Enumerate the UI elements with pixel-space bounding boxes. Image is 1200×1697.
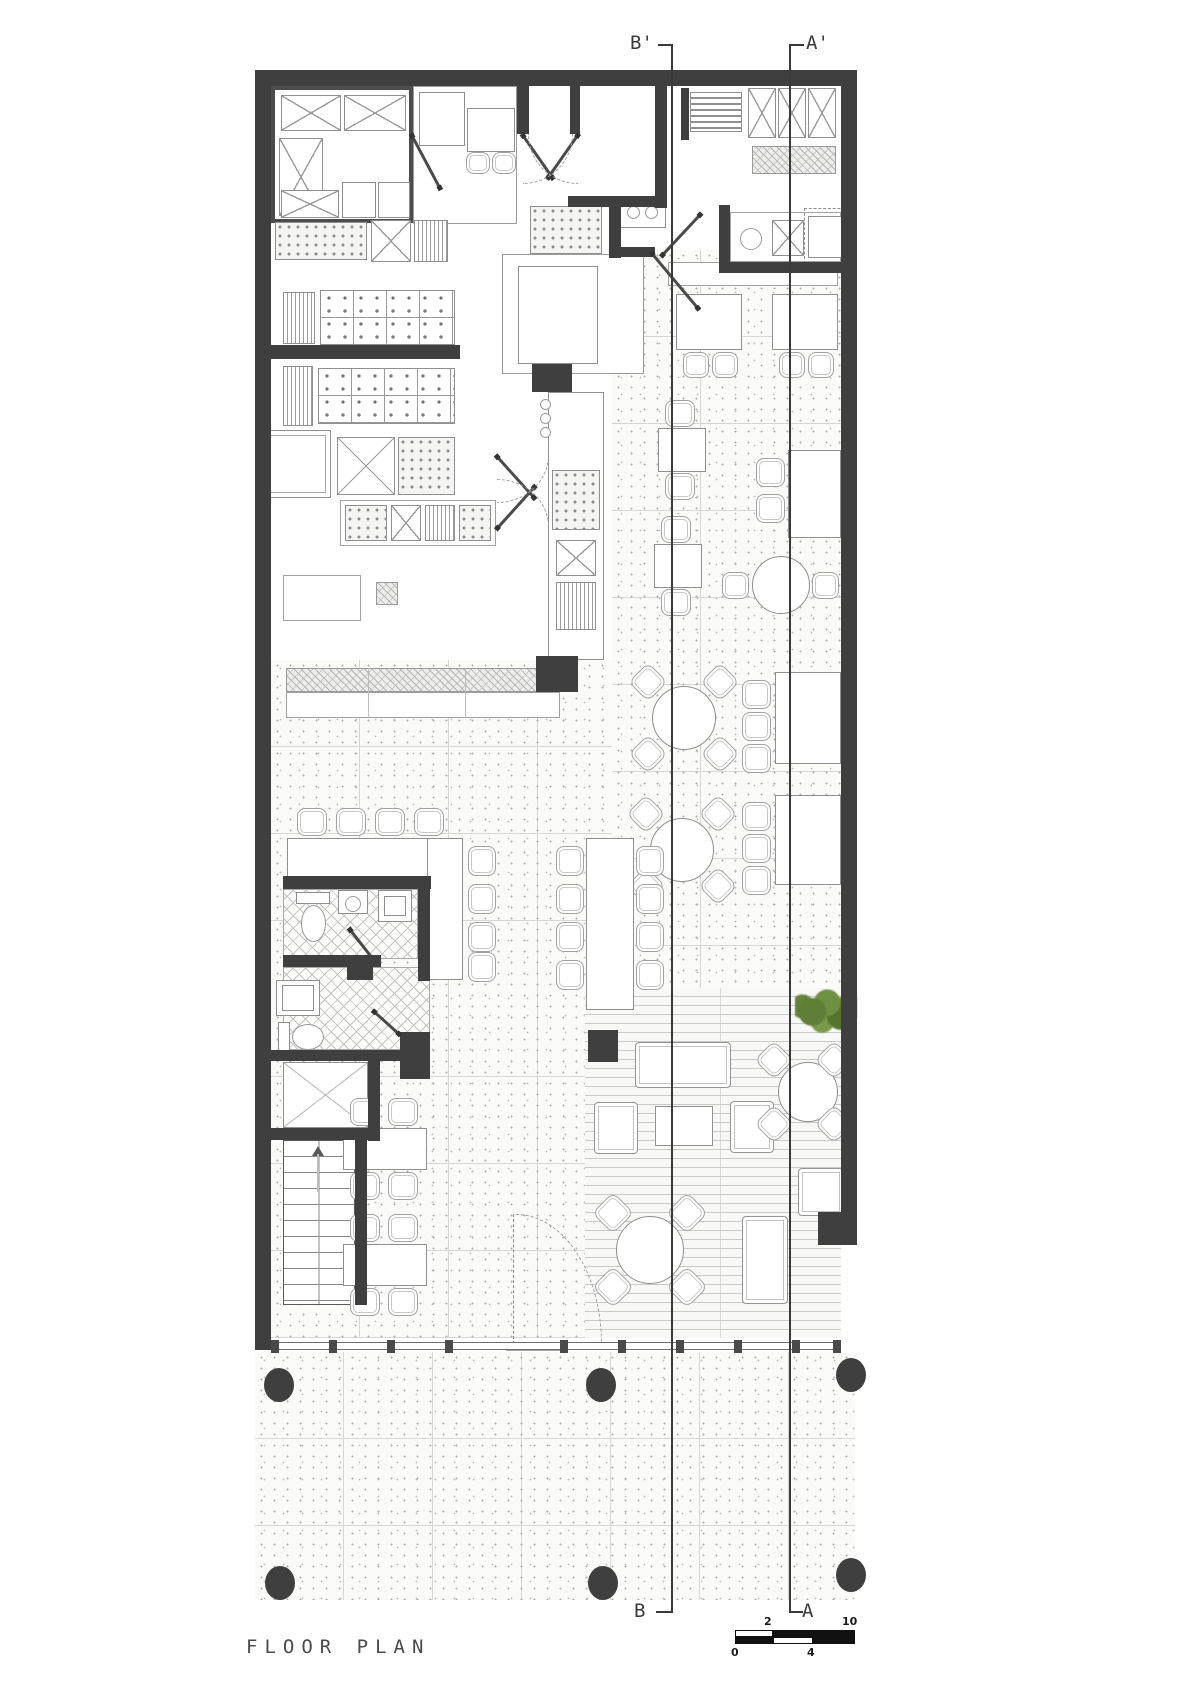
staff-desk (467, 108, 515, 152)
storage-shelf (281, 190, 339, 218)
prep-shelf (283, 366, 313, 426)
cooktop-battery (320, 290, 455, 345)
column (836, 1358, 866, 1392)
chair (388, 1214, 418, 1242)
wall-table (775, 672, 841, 764)
round-table (752, 556, 810, 614)
staff-chair (492, 152, 516, 174)
kitchen-unit (414, 220, 448, 262)
outer-wall-top (255, 70, 857, 86)
section-label-a-top: A' (806, 32, 836, 56)
chair (808, 352, 834, 378)
back-counter (283, 575, 361, 621)
dining-table (676, 294, 742, 350)
mullion (387, 1340, 395, 1353)
mullion (271, 1340, 279, 1353)
scale-bar-segment (773, 1630, 813, 1637)
armchair (594, 1102, 638, 1154)
vent-stub (681, 88, 689, 140)
cook-equip (459, 505, 491, 541)
chair (661, 589, 691, 616)
chair (712, 352, 738, 378)
chair (812, 572, 839, 599)
toilet-bowl (292, 1024, 324, 1050)
section-line-b (671, 44, 673, 1613)
scale-bar-segment (773, 1637, 813, 1644)
louver-vent (690, 92, 742, 132)
burner (627, 206, 640, 219)
kitchen-sink-unit (371, 220, 411, 262)
cook-equip (345, 505, 387, 541)
column (264, 1368, 294, 1402)
dishwasher (808, 216, 842, 258)
terrace-pavement (255, 1352, 855, 1600)
bar-stool (468, 846, 496, 876)
section-flag (656, 1611, 672, 1613)
island-counter (518, 266, 598, 364)
armchair (798, 1168, 844, 1216)
storage-cabinet (342, 182, 376, 218)
chair (756, 458, 785, 487)
wash-station (778, 88, 806, 138)
pass-counter-hatch (286, 668, 560, 692)
wash-station (808, 88, 836, 138)
mullion (618, 1340, 626, 1353)
chair (556, 922, 584, 952)
wash-station (748, 88, 776, 138)
staff-cabinet (419, 92, 465, 146)
kitchen-equipment (398, 437, 455, 495)
cooktop-battery (318, 368, 455, 424)
column (586, 1368, 616, 1402)
mullion (445, 1340, 453, 1353)
dishcounter-wall (719, 205, 730, 267)
sofa (742, 1216, 788, 1304)
bar-scallop (540, 427, 551, 438)
sink-basin (384, 896, 406, 916)
bar-stool (414, 808, 444, 836)
chair (722, 572, 749, 599)
bench-divider (465, 668, 466, 718)
lounge-post (588, 1030, 618, 1062)
section-flag (658, 44, 672, 46)
chair (742, 712, 771, 741)
outer-wall-left (255, 70, 271, 1350)
bar-stool (468, 922, 496, 952)
toilet-bowl (301, 905, 326, 942)
scale-bar-segment (735, 1630, 773, 1637)
scale-tick: 4 (807, 1646, 819, 1659)
bar-equip (556, 582, 596, 630)
bar-scallop (540, 413, 551, 424)
mullion (833, 1340, 841, 1353)
chair (742, 680, 771, 709)
elevator-wall (271, 1128, 380, 1140)
dining-table (772, 294, 838, 350)
door-stub (517, 86, 529, 134)
communal-table (586, 838, 634, 1010)
toilet-tank (296, 892, 330, 904)
urinal-bowl (345, 896, 361, 912)
bench-divider (368, 668, 369, 718)
dishcounter-wall (719, 262, 857, 273)
stair-arrow-stem (317, 1154, 319, 1192)
chair (742, 866, 771, 895)
chair (756, 494, 785, 523)
grill-block (530, 206, 602, 254)
bar-stool (297, 808, 327, 836)
chair (556, 960, 584, 990)
floor-plan-canvas: B'A'BAFLOOR PLAN21004 (0, 0, 1200, 1697)
bar-stool (468, 952, 496, 982)
bathroom-wall (418, 876, 430, 981)
mullion (734, 1340, 742, 1353)
corner-block (347, 962, 373, 980)
chair (388, 1172, 418, 1200)
bar-equip (556, 540, 596, 576)
scale-bar-segment (735, 1637, 773, 1644)
chair (665, 473, 695, 500)
dishroom-wall (655, 86, 667, 208)
staff-chair (466, 152, 490, 174)
bar-stool (468, 884, 496, 914)
mullion (329, 1340, 337, 1353)
chair (661, 516, 691, 543)
chefs-bar-counter (427, 838, 463, 980)
chair (683, 352, 709, 378)
sofa (635, 1042, 731, 1088)
kitchen-equipment (275, 222, 367, 260)
hood-unit (283, 292, 315, 344)
chair (636, 846, 664, 876)
cook-equip (425, 505, 455, 541)
chair (742, 802, 771, 831)
fridge (265, 430, 331, 498)
corner-block (818, 1212, 844, 1245)
round-table (652, 686, 716, 750)
bar-stool (336, 808, 366, 836)
storefront-glass (271, 1342, 841, 1350)
section-label-b-top: B' (630, 32, 660, 56)
bar-end-block (536, 656, 578, 692)
section-label-a-bottom: A (802, 1600, 826, 1624)
scale-bar-segment (813, 1637, 855, 1644)
section-line-a (789, 44, 791, 1613)
outer-wall-right (841, 70, 857, 1245)
bar-scallop (540, 399, 551, 410)
chair (636, 884, 664, 914)
chair (636, 960, 664, 990)
floor-drain (376, 582, 398, 605)
bathroom-wall (283, 876, 431, 889)
scale-bar-segment (813, 1630, 855, 1637)
double-sink (337, 437, 395, 495)
chair (556, 884, 584, 914)
chair (556, 846, 584, 876)
dish-sink (772, 220, 804, 256)
bar-equip (552, 470, 600, 530)
chair (742, 834, 771, 863)
wall-table (788, 450, 841, 538)
mullion (676, 1340, 684, 1353)
elevator-wall (271, 1050, 401, 1061)
wall-table (775, 795, 841, 885)
host-stand (400, 1032, 430, 1079)
chair (742, 744, 771, 773)
island-dark-block (532, 364, 572, 392)
cafe-table (658, 428, 706, 472)
cook-equip (391, 505, 421, 541)
scale-tick: 10 (842, 1615, 860, 1628)
drain-mat (752, 146, 836, 174)
kitchen-divider-wall (255, 345, 460, 359)
toilet-tank (278, 1022, 290, 1052)
entry-door-dashed (513, 1214, 516, 1344)
column (588, 1566, 618, 1600)
chair (636, 922, 664, 952)
section-label-b-bottom: B (634, 1600, 658, 1624)
cafe-table (654, 544, 702, 588)
chair (388, 1288, 418, 1316)
stair-wall (355, 1140, 367, 1305)
sink-basin (282, 985, 314, 1011)
storage-shelf (281, 95, 341, 131)
chair (388, 1098, 418, 1126)
door-stub (570, 86, 580, 134)
column (836, 1558, 866, 1592)
sink-drain (740, 228, 762, 250)
mullion (560, 1340, 568, 1353)
column (265, 1566, 295, 1600)
chair (779, 352, 805, 378)
round-table (616, 1216, 684, 1284)
mullion (792, 1340, 800, 1353)
storage-shelf (344, 95, 406, 131)
door-swing-arc (497, 479, 549, 527)
bar-stool (375, 808, 405, 836)
scale-tick: 2 (764, 1615, 776, 1628)
pass-bench (286, 692, 560, 718)
coffee-table (655, 1106, 713, 1146)
drawing-title: FLOOR PLAN (246, 1636, 526, 1662)
chair (665, 400, 695, 427)
section-flag (791, 44, 804, 46)
scale-tick: 0 (731, 1646, 743, 1659)
storage-cabinet (378, 182, 410, 218)
